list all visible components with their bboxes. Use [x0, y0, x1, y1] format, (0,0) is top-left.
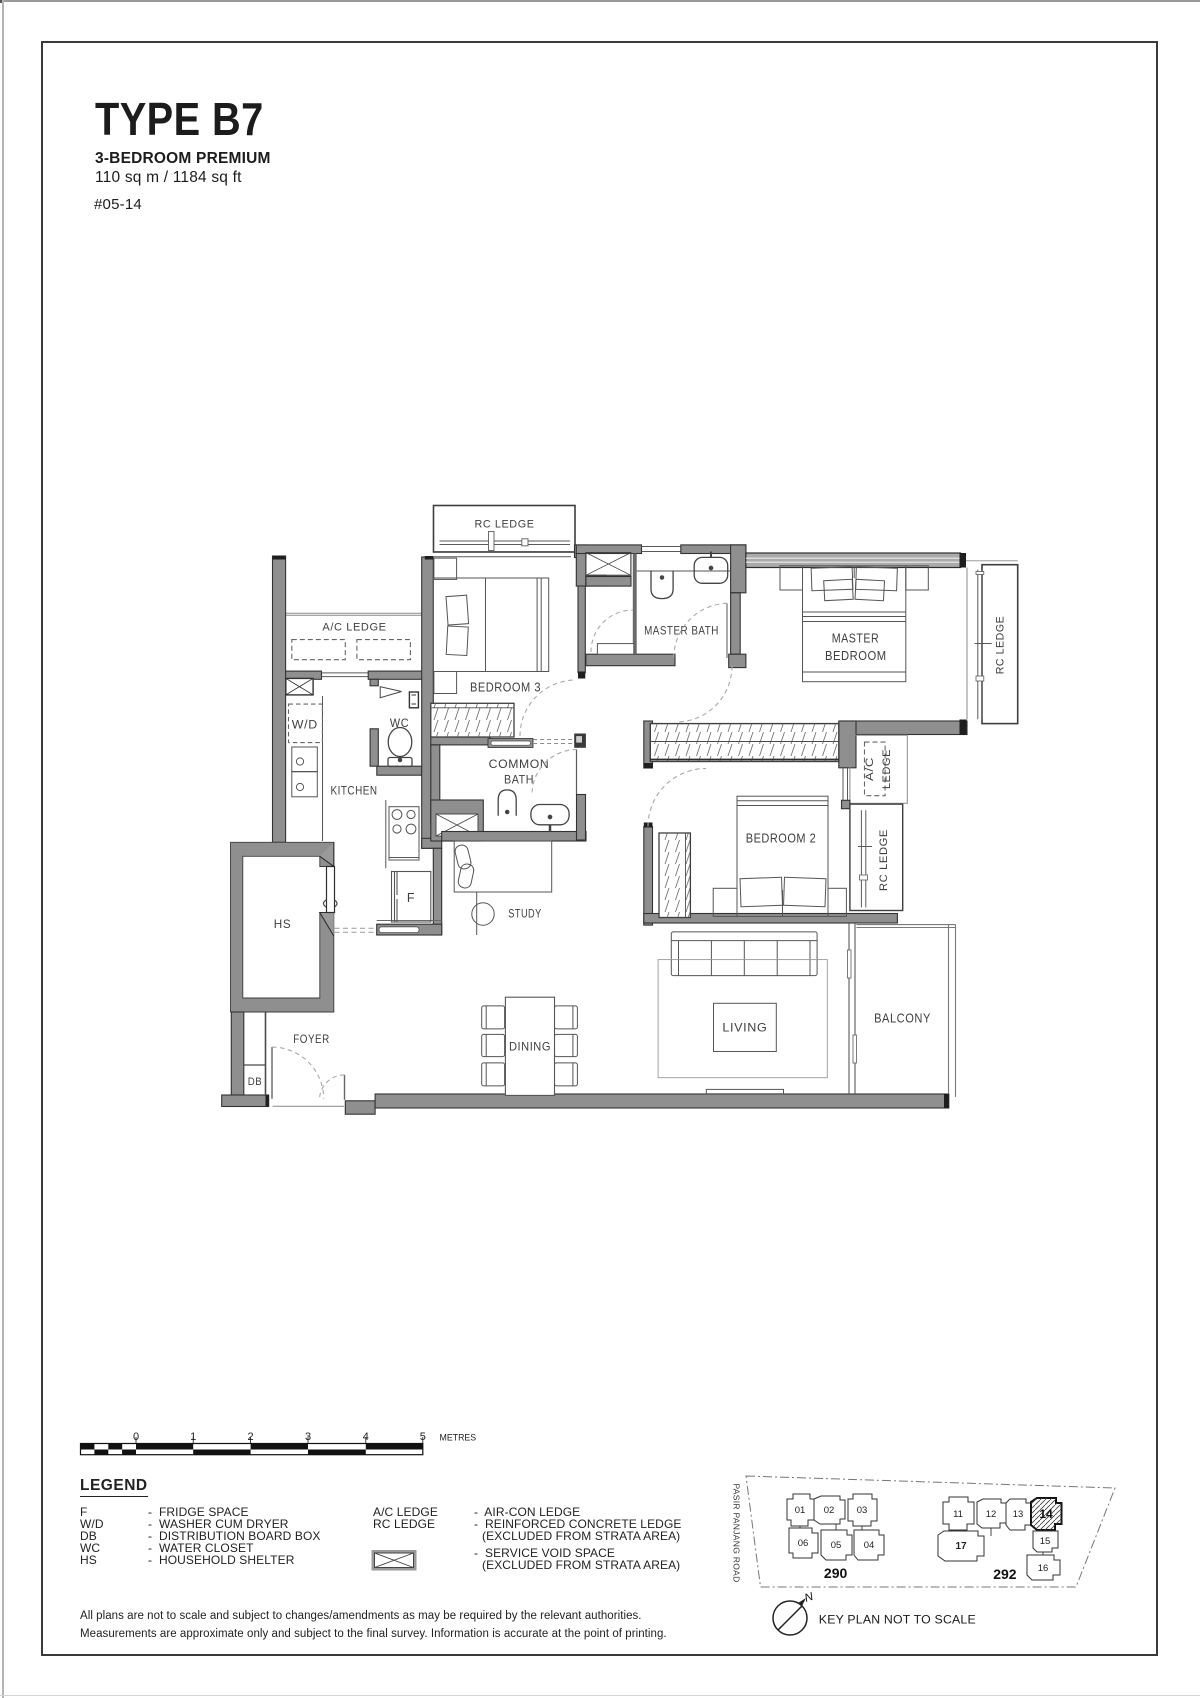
svg-text:N: N — [803, 1591, 815, 1605]
svg-text:13: 13 — [1013, 1509, 1024, 1520]
svg-text:RC LEDGE: RC LEDGE — [995, 616, 1007, 675]
svg-text:A/C: A/C — [864, 757, 876, 781]
svg-text:05: 05 — [831, 1540, 842, 1551]
svg-text:MASTER: MASTER — [832, 632, 880, 646]
svg-text:LEDGE: LEDGE — [881, 749, 893, 789]
svg-text:KITCHEN: KITCHEN — [331, 784, 378, 798]
svg-text:01: 01 — [795, 1505, 806, 1516]
svg-text:RC LEDGE: RC LEDGE — [475, 519, 535, 531]
svg-text:14: 14 — [1039, 1507, 1053, 1521]
svg-text:WC: WC — [390, 716, 409, 730]
svg-text:292: 292 — [993, 1566, 1017, 1582]
svg-text:11: 11 — [953, 1509, 963, 1520]
svg-text:DINING: DINING — [509, 1040, 551, 1054]
svg-text:06: 06 — [798, 1538, 809, 1549]
svg-text:F: F — [407, 891, 415, 905]
svg-text:STUDY: STUDY — [508, 907, 541, 921]
svg-text:BEDROOM 3: BEDROOM 3 — [470, 680, 541, 695]
svg-text:290: 290 — [824, 1565, 848, 1581]
svg-text:LIVING: LIVING — [722, 1021, 767, 1035]
svg-text:12: 12 — [986, 1509, 997, 1520]
svg-text:RC LEDGE: RC LEDGE — [878, 829, 890, 891]
svg-text:HS: HS — [274, 917, 292, 931]
svg-text:BEDROOM 2: BEDROOM 2 — [746, 831, 817, 846]
svg-text:DB: DB — [248, 1076, 263, 1088]
svg-text:KEY PLAN NOT TO SCALE: KEY PLAN NOT TO SCALE — [819, 1613, 976, 1627]
svg-text:15: 15 — [1040, 1536, 1051, 1547]
svg-text:PASIR PANJANG ROAD: PASIR PANJANG ROAD — [732, 1483, 742, 1582]
svg-text:BALCONY: BALCONY — [874, 1012, 931, 1026]
svg-text:A/C LEDGE: A/C LEDGE — [322, 622, 386, 634]
svg-text:BEDROOM: BEDROOM — [825, 649, 887, 663]
svg-text:W/D: W/D — [292, 720, 318, 732]
svg-text:FOYER: FOYER — [293, 1032, 329, 1046]
svg-text:16: 16 — [1038, 1563, 1049, 1574]
svg-text:04: 04 — [864, 1540, 875, 1551]
svg-text:17: 17 — [955, 1541, 967, 1552]
svg-text:BATH: BATH — [504, 773, 534, 787]
svg-text:MASTER BATH: MASTER BATH — [644, 624, 719, 638]
svg-text:02: 02 — [824, 1505, 835, 1516]
svg-text:METRES: METRES — [440, 1433, 477, 1443]
svg-text:03: 03 — [857, 1505, 868, 1516]
